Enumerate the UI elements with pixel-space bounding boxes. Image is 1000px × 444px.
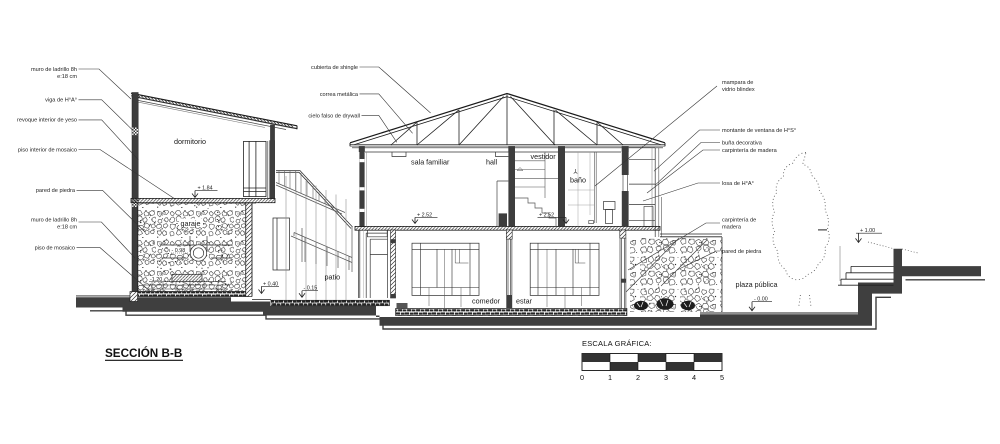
svg-text:-1.20: -1.20 — [150, 277, 162, 283]
svg-text:buña decorativa: buña decorativa — [722, 140, 763, 146]
svg-text:cubierta de shingle: cubierta de shingle — [311, 65, 358, 71]
svg-text:hall: hall — [486, 158, 498, 167]
svg-text:e:18 cm: e:18 cm — [57, 74, 77, 80]
svg-text:sala familiar: sala familiar — [411, 158, 450, 167]
svg-text:mampara de: mampara de — [722, 80, 753, 86]
svg-text:montante de ventana de H°S°: montante de ventana de H°S° — [722, 128, 796, 134]
svg-text:1: 1 — [608, 373, 612, 382]
svg-text:dormitorio: dormitorio — [174, 137, 206, 146]
svg-text:correa metálica: correa metálica — [320, 92, 359, 98]
svg-text:cielo falso de drywall: cielo falso de drywall — [308, 113, 360, 119]
svg-text:patio: patio — [325, 273, 341, 282]
svg-text:pared de piedra: pared de piedra — [36, 188, 76, 194]
svg-text:revoque interior de yeso: revoque interior de yeso — [17, 118, 77, 124]
svg-text:vestidor: vestidor — [531, 152, 557, 161]
svg-text:0: 0 — [580, 373, 584, 382]
svg-text:plaza pública: plaza pública — [736, 280, 778, 289]
svg-text:muro de ladrillo 8h: muro de ladrillo 8h — [31, 67, 77, 73]
svg-text:losa de H°A°: losa de H°A° — [722, 181, 754, 187]
svg-text:2: 2 — [636, 373, 640, 382]
svg-text:muro de ladrillo 8h: muro de ladrillo 8h — [31, 217, 77, 223]
svg-text:carpintería de madera: carpintería de madera — [722, 148, 778, 154]
svg-text:3: 3 — [664, 373, 668, 382]
svg-text:vidrio blindex: vidrio blindex — [722, 87, 755, 93]
svg-text:pared de piedra: pared de piedra — [722, 249, 762, 255]
svg-text:garaje: garaje — [181, 219, 201, 228]
svg-text:comedor: comedor — [472, 297, 501, 306]
svg-text:piso interior de mosaico: piso interior de mosaico — [18, 147, 77, 153]
svg-text:SECCIÓN B-B: SECCIÓN B-B — [105, 347, 182, 360]
svg-text:madera: madera — [722, 224, 742, 230]
svg-text:estar: estar — [516, 297, 533, 306]
svg-text:viga de H°A°: viga de H°A° — [45, 98, 77, 104]
svg-text:piso de mosaico: piso de mosaico — [35, 245, 75, 251]
svg-text:4: 4 — [692, 373, 696, 382]
svg-text:e:18 cm: e:18 cm — [57, 224, 77, 230]
svg-text:carpintería de: carpintería de — [722, 217, 756, 223]
svg-text:5: 5 — [720, 373, 724, 382]
svg-text:ESCALA GRÁFICA:: ESCALA GRÁFICA: — [582, 339, 652, 348]
